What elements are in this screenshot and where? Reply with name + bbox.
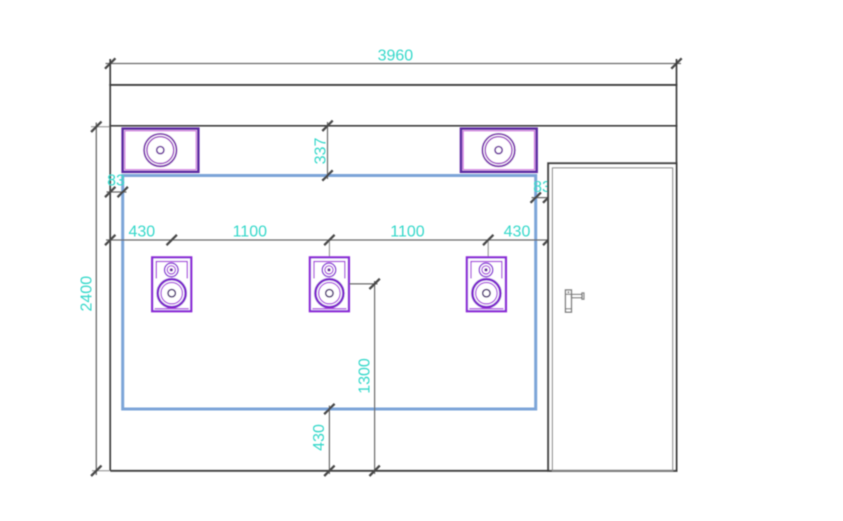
svg-text:1300: 1300	[357, 358, 374, 394]
svg-text:2400: 2400	[79, 276, 96, 312]
svg-text:1100: 1100	[390, 223, 425, 240]
svg-text:83: 83	[107, 173, 125, 190]
svg-text:3960: 3960	[378, 48, 414, 65]
svg-text:337: 337	[312, 138, 329, 165]
svg-text:1100: 1100	[233, 223, 268, 240]
svg-text:430: 430	[311, 424, 328, 451]
svg-text:430: 430	[504, 223, 531, 240]
svg-text:430: 430	[128, 223, 155, 240]
